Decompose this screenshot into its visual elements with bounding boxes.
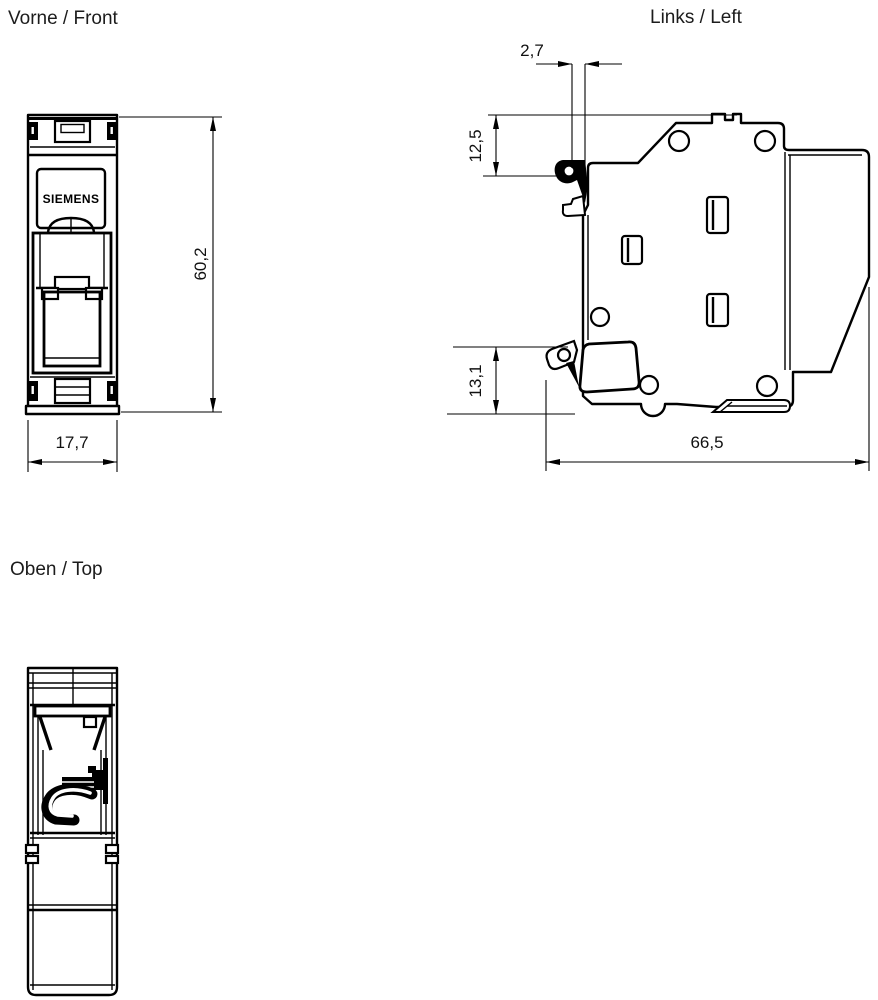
- clip-spring: [580, 342, 639, 392]
- dim-value-17-7: 17,7: [55, 433, 88, 452]
- pivot-hole-mid: [591, 308, 609, 326]
- technical-drawing-canvas: Vorne / Front SIEMENS: [0, 0, 878, 1000]
- dim-front-height: 60,2: [119, 117, 222, 412]
- front-view: Vorne / Front SIEMENS: [8, 8, 222, 472]
- pivot-hole-bottom-right: [757, 376, 777, 396]
- siemens-logo: SIEMENS: [43, 192, 100, 206]
- top-view: Oben / Top: [10, 559, 118, 995]
- din-rail-foot: [713, 400, 790, 412]
- din-latch-hook: [563, 196, 585, 216]
- dim-value-12-5: 12,5: [466, 129, 485, 162]
- front-rj45-port: [33, 233, 111, 373]
- top-view-title: Oben / Top: [10, 559, 103, 580]
- left-view-title: Links / Left: [650, 7, 743, 28]
- cavity-front-bar: [35, 706, 110, 716]
- dim-front-width: 17,7: [28, 420, 117, 472]
- left-view: Links / Left: [447, 7, 869, 471]
- dim-latch-offset: 2,7: [520, 41, 622, 180]
- front-view-title: Vorne / Front: [8, 8, 119, 29]
- pivot-hole-bottom-left: [640, 376, 658, 394]
- dim-value-13-1: 13,1: [466, 364, 485, 397]
- dim-value-60-2: 60,2: [191, 247, 210, 280]
- din-clip-lower: [547, 341, 640, 392]
- dim-value-2-7: 2,7: [520, 41, 544, 60]
- mounting-hole-top-right: [755, 131, 775, 151]
- port-flap-tab: [55, 277, 89, 289]
- mounting-hole-top-left: [669, 131, 689, 151]
- dim-value-66-5: 66,5: [690, 433, 723, 452]
- dimension-drawing: Vorne / Front SIEMENS: [0, 0, 878, 1000]
- din-latch-upper: [555, 160, 588, 216]
- terminal-bottom: [55, 379, 90, 403]
- front-foot-edge: [26, 406, 119, 414]
